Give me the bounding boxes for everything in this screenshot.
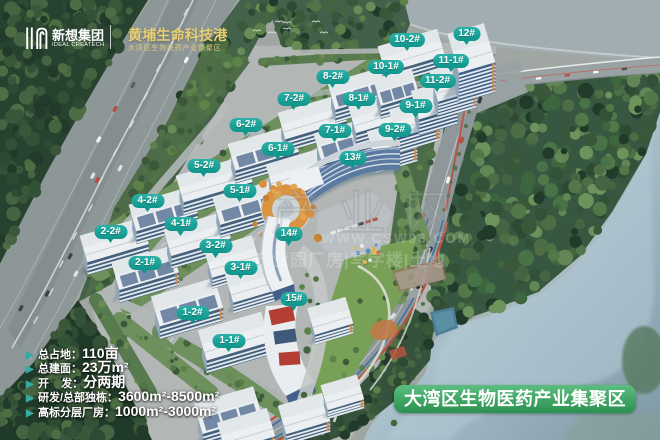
svg-text:WWW.CSW93.COM: WWW.CSW93.COM: [322, 231, 471, 246]
svg-text:产业园厂房|写字楼|土地: 产业园厂房|写字楼|土地: [254, 250, 446, 270]
